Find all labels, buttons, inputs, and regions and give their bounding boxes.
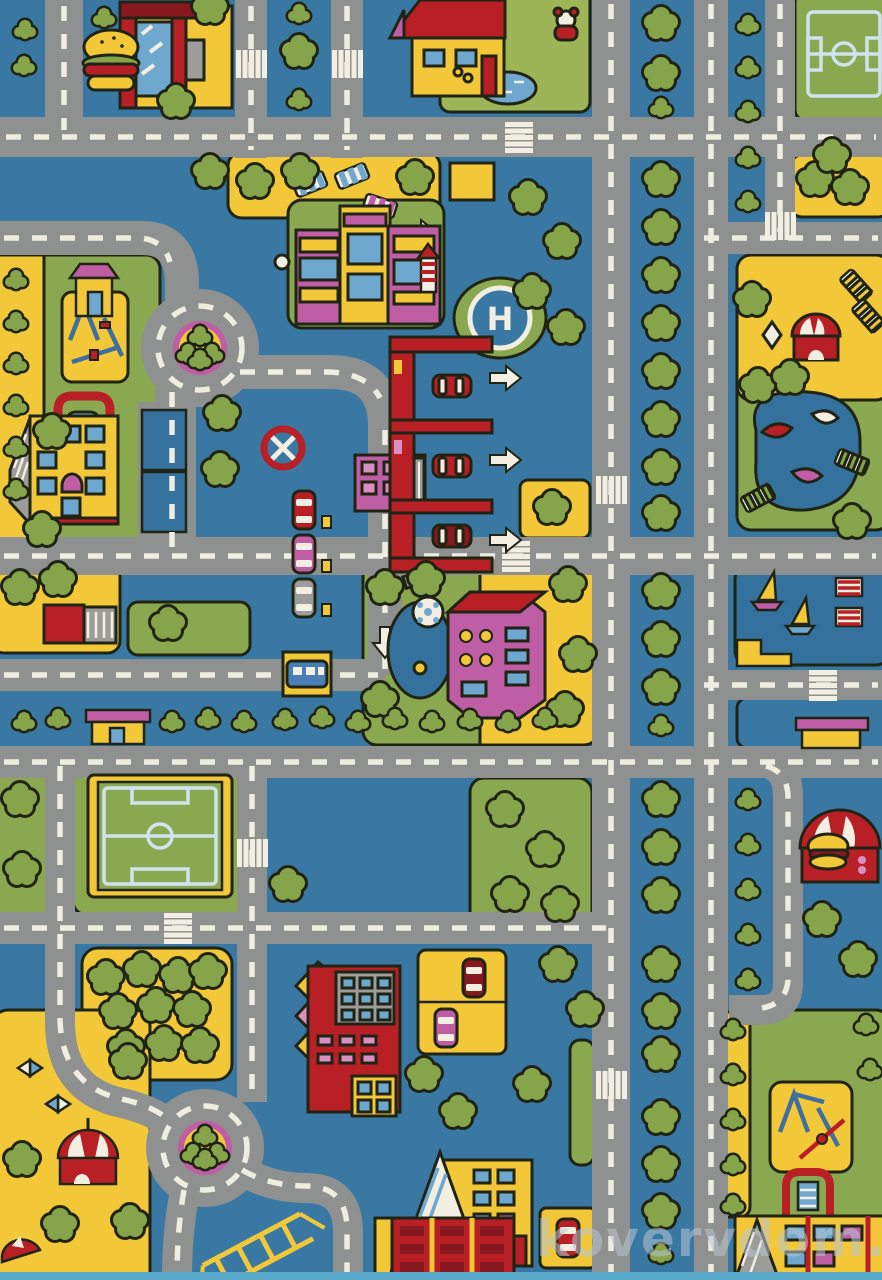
bush-icon	[650, 716, 672, 735]
bush-icon	[5, 312, 27, 331]
tree-icon	[549, 311, 583, 343]
bush-icon	[737, 192, 759, 211]
tree-icon	[841, 943, 875, 975]
tree-icon	[35, 415, 69, 447]
tree-icon	[488, 793, 522, 825]
tree-icon	[125, 953, 159, 985]
bus-icon	[287, 661, 327, 687]
tree-icon	[644, 1148, 678, 1180]
shops-icon	[44, 605, 116, 643]
crosswalk-icon	[236, 50, 267, 78]
bush-icon	[5, 480, 27, 499]
tree-icon	[644, 259, 678, 291]
burger-icon	[83, 30, 139, 90]
helipad-letter: H	[487, 300, 514, 338]
tree-icon	[644, 831, 678, 863]
tree-icon	[89, 961, 123, 993]
brick-building-icon	[375, 1218, 514, 1280]
tree-icon	[193, 0, 227, 23]
tree-icon	[147, 1027, 181, 1059]
bush-icon	[737, 15, 759, 34]
bus-stop	[283, 652, 331, 696]
car-icon	[293, 535, 315, 573]
crosswalk-icon	[765, 212, 796, 240]
teddy-bear-icon	[554, 8, 578, 40]
no-entry-sign-icon	[264, 429, 302, 467]
bush-icon	[722, 1155, 744, 1174]
tree-icon	[43, 1208, 77, 1240]
tree-icon	[815, 139, 849, 171]
tree-icon	[644, 355, 678, 387]
bush-icon	[737, 880, 759, 899]
bush-icon	[737, 148, 759, 167]
bush-icon	[421, 712, 443, 731]
play-rug-photo: H	[0, 0, 882, 1280]
bush-icon	[855, 1015, 877, 1034]
bush-icon	[459, 710, 481, 729]
tree-icon	[644, 783, 678, 815]
tree-icon	[175, 993, 209, 1025]
bush-icon	[13, 712, 35, 731]
shed-icon	[796, 718, 868, 748]
burger-icon	[808, 834, 848, 869]
bush-icon	[722, 1110, 744, 1129]
car-icon	[433, 375, 471, 397]
tree-icon	[511, 181, 545, 213]
car-icon	[463, 959, 485, 997]
tree-icon	[773, 361, 807, 393]
tree-icon	[191, 955, 225, 987]
tree-icon	[644, 451, 678, 483]
bush-icon	[722, 1065, 744, 1084]
tree-icon	[183, 1029, 217, 1061]
roundabout-icon	[176, 324, 224, 372]
bush-icon	[197, 709, 219, 728]
tree-icon	[644, 623, 678, 655]
tree-icon	[111, 1045, 145, 1077]
duck-icon	[414, 662, 426, 674]
bush-icon	[347, 712, 369, 731]
tree-icon	[644, 948, 678, 980]
crosswalk-icon	[596, 476, 627, 504]
rug-edge	[0, 1272, 882, 1280]
bush-icon	[5, 396, 27, 415]
shed-icon	[86, 710, 150, 744]
tree-icon	[644, 575, 678, 607]
crosswalk-icon	[809, 670, 837, 701]
bush-icon	[311, 708, 333, 727]
kiosk-icon	[70, 264, 118, 316]
bush-icon	[47, 709, 69, 728]
tree-icon	[644, 7, 678, 39]
tree-icon	[644, 671, 678, 703]
bush-icon	[5, 438, 27, 457]
playground-icon	[770, 1082, 852, 1172]
tree-icon	[644, 879, 678, 911]
tree-icon	[41, 563, 75, 595]
bush-icon	[859, 1060, 881, 1079]
tree-icon	[644, 57, 678, 89]
tree-icon	[407, 1058, 441, 1090]
tree-icon	[644, 307, 678, 339]
tree-icon	[644, 163, 678, 195]
apartment-building-icon	[296, 962, 400, 1116]
crosswalk-icon	[164, 913, 192, 944]
roundabout-icon	[181, 1124, 229, 1172]
tree-icon	[515, 275, 549, 307]
tree-icon	[113, 1205, 147, 1237]
tree-icon	[644, 1101, 678, 1133]
tree-icon	[644, 995, 678, 1027]
bush-icon	[288, 90, 310, 109]
burger-stand-icon	[800, 810, 880, 882]
bush-icon	[737, 835, 759, 854]
bush-icon	[5, 270, 27, 289]
tree-icon	[193, 155, 227, 187]
bush-icon	[534, 709, 556, 728]
soccer-ball-icon	[413, 597, 443, 627]
orchard-icon	[89, 953, 225, 1063]
tree-icon	[644, 497, 678, 529]
duck-icon	[275, 255, 289, 269]
tree-icon	[835, 505, 869, 537]
tree-icon	[528, 833, 562, 865]
bush-icon	[737, 58, 759, 77]
tree-icon	[25, 513, 59, 545]
circus-kiosk-icon	[792, 314, 840, 360]
bush-icon	[13, 56, 35, 75]
bush-icon	[737, 102, 759, 121]
bush-icon	[737, 790, 759, 809]
tree-icon	[551, 568, 585, 600]
crosswalk-icon	[237, 839, 268, 867]
bush-icon	[288, 4, 310, 23]
car-icon	[433, 455, 471, 477]
tree-icon	[101, 995, 135, 1027]
bush-icon	[14, 20, 36, 39]
bush-icon	[274, 710, 296, 729]
tree-icon	[543, 888, 577, 920]
watermark-text: kovervdom.ru	[536, 1210, 882, 1268]
tree-icon	[159, 85, 193, 117]
tree-icon	[741, 369, 775, 401]
tree-icon	[441, 1095, 475, 1127]
tree-icon	[368, 571, 402, 603]
car-icon	[293, 579, 315, 617]
tree-icon	[515, 1068, 549, 1100]
tree-icon	[644, 1038, 678, 1070]
bush-icon	[497, 712, 519, 731]
tree-icon	[282, 35, 316, 67]
tree-icon	[3, 783, 37, 815]
crosswalk-icon	[596, 1071, 627, 1099]
tree-icon	[271, 868, 305, 900]
tree-icon	[409, 563, 443, 595]
bush-icon	[737, 925, 759, 944]
bush-icon	[233, 712, 255, 731]
crosswalk-icon	[505, 122, 533, 153]
tree-icon	[203, 453, 237, 485]
bush-icon	[5, 354, 27, 373]
tree-icon	[205, 397, 239, 429]
bush-icon	[93, 8, 115, 27]
tree-icon	[735, 283, 769, 315]
tree-icon	[3, 571, 37, 603]
tree-icon	[5, 853, 39, 885]
bush-icon	[161, 712, 183, 731]
car-icon	[293, 491, 315, 529]
bush-icon	[737, 970, 759, 989]
tree-icon	[398, 161, 432, 193]
tree-icon	[561, 638, 595, 670]
car-icon	[435, 1009, 457, 1047]
parking-spots	[142, 410, 186, 532]
tree-icon	[151, 607, 185, 639]
tree-icon	[568, 993, 602, 1025]
tree-icon	[139, 989, 173, 1021]
tree-icon	[5, 1143, 39, 1175]
crosswalk-icon	[332, 50, 363, 78]
tree-icon	[541, 948, 575, 980]
tree-icon	[833, 171, 867, 203]
soccer-field-icon	[88, 775, 232, 897]
bush-icon	[650, 98, 672, 117]
tree-icon	[545, 225, 579, 257]
car-icon	[433, 525, 471, 547]
bush-icon	[384, 709, 406, 728]
bush-icon	[722, 1020, 744, 1039]
tree-icon	[644, 403, 678, 435]
tree-icon	[283, 155, 317, 187]
tree-icon	[238, 165, 272, 197]
tree-icon	[535, 491, 569, 523]
tree-icon	[493, 878, 527, 910]
rug-scene: H	[0, 0, 882, 1280]
tree-icon	[644, 211, 678, 243]
tree-icon	[805, 903, 839, 935]
